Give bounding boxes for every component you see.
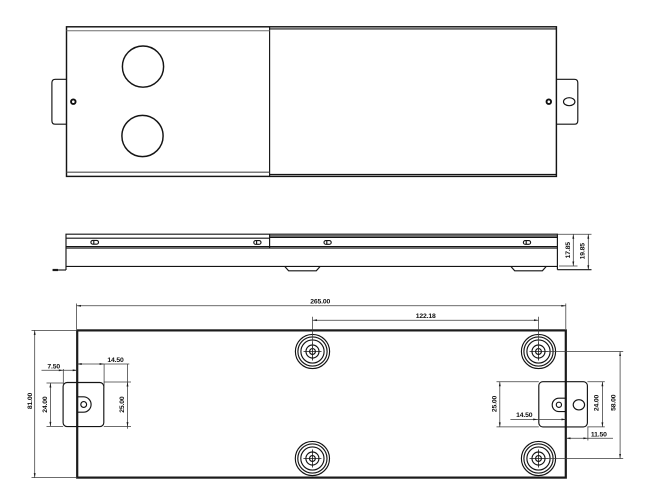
svg-text:25.00: 25.00 — [119, 396, 126, 413]
svg-text:14.50: 14.50 — [107, 357, 124, 364]
svg-text:265.00: 265.00 — [310, 298, 330, 305]
svg-text:58.00: 58.00 — [611, 394, 618, 411]
svg-text:122.18: 122.18 — [416, 313, 436, 320]
svg-text:14.50: 14.50 — [516, 412, 533, 419]
svg-text:7.50: 7.50 — [47, 364, 60, 371]
svg-text:19.85: 19.85 — [579, 243, 586, 260]
svg-text:25.00: 25.00 — [492, 396, 499, 413]
svg-text:24.00: 24.00 — [42, 396, 49, 413]
svg-text:24.00: 24.00 — [594, 395, 601, 412]
svg-text:81.00: 81.00 — [27, 393, 34, 410]
svg-text:11.50: 11.50 — [591, 431, 607, 438]
svg-text:17.85: 17.85 — [565, 242, 572, 259]
